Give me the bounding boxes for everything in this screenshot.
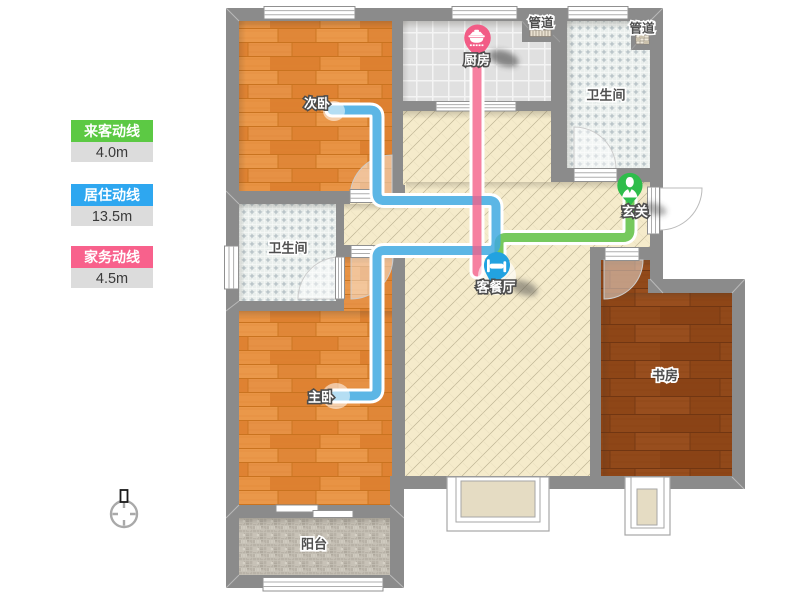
svg-text:客餐厅: 客餐厅 xyxy=(476,280,515,295)
svg-text:13.5m: 13.5m xyxy=(92,209,132,225)
svg-text:卫生间: 卫生间 xyxy=(268,241,307,256)
svg-text:4.0m: 4.0m xyxy=(96,145,128,161)
svg-text:次卧: 次卧 xyxy=(304,96,330,111)
svg-text:卫生间: 卫生间 xyxy=(586,88,625,103)
svg-text:玄关: 玄关 xyxy=(622,204,648,219)
svg-text:管道: 管道 xyxy=(629,21,655,36)
svg-text:居住动线: 居住动线 xyxy=(84,187,140,203)
svg-text:4.5m: 4.5m xyxy=(96,271,128,287)
svg-text:管道: 管道 xyxy=(528,15,554,30)
svg-text:主卧: 主卧 xyxy=(308,390,334,405)
svg-text:来客动线: 来客动线 xyxy=(83,123,140,139)
svg-text:家务动线: 家务动线 xyxy=(84,249,140,265)
svg-text:书房: 书房 xyxy=(652,368,678,383)
svg-text:厨房: 厨房 xyxy=(464,53,490,68)
svg-text:阳台: 阳台 xyxy=(301,537,327,552)
